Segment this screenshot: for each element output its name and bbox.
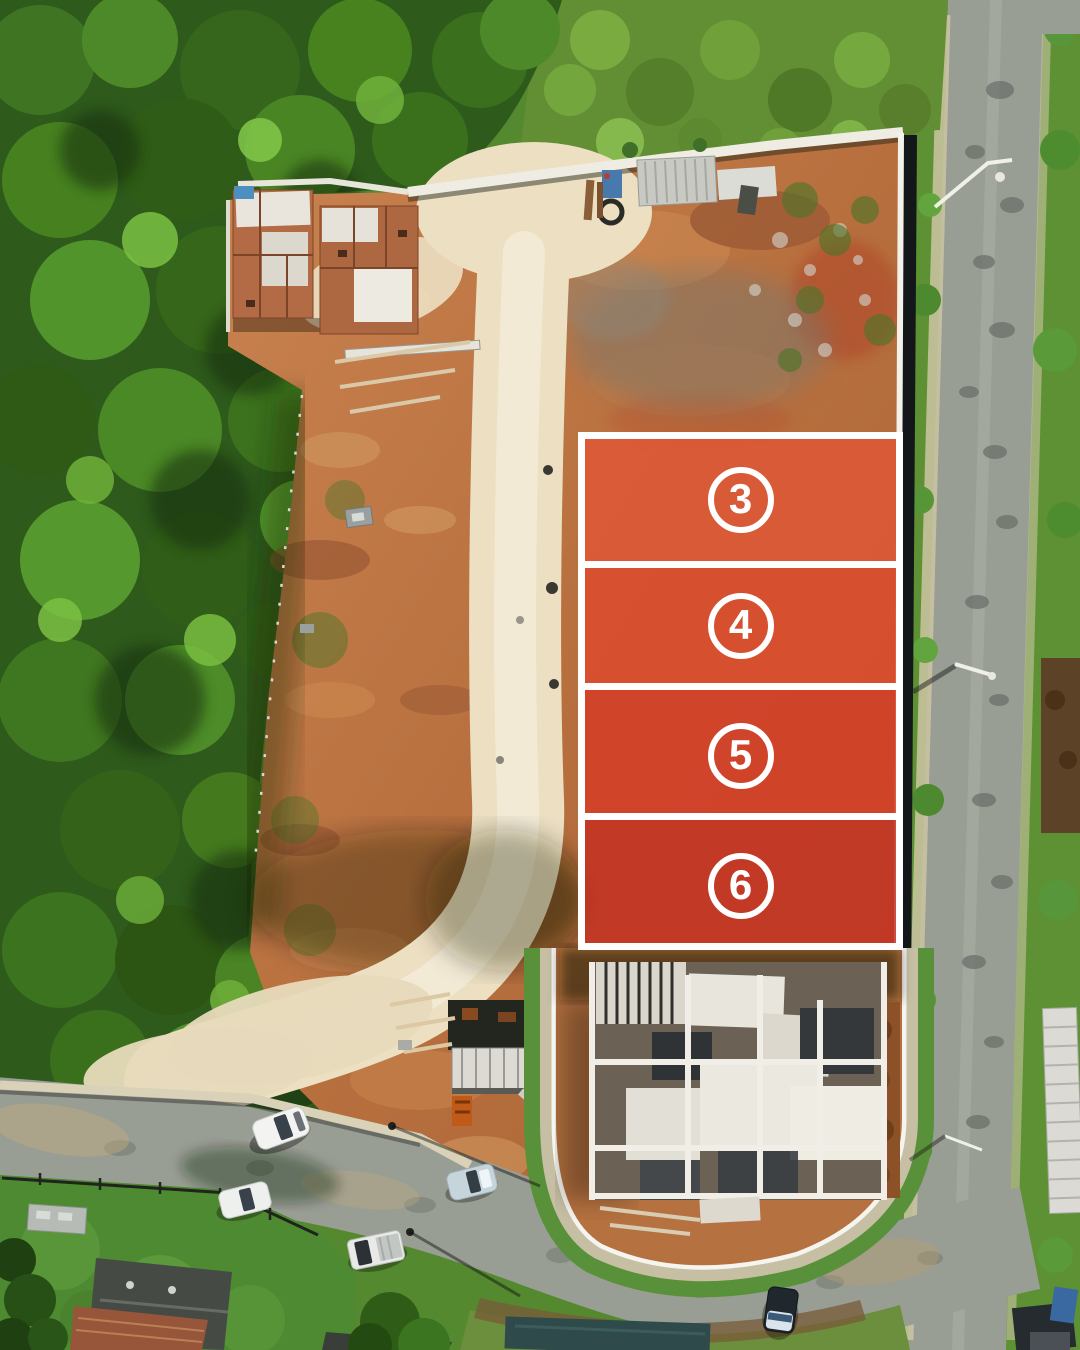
- lot-number-badge: 4: [708, 593, 774, 659]
- lot-number: 6: [729, 864, 752, 906]
- lot-overlays: 3 4 5 6: [0, 0, 1080, 1350]
- lot-number: 4: [729, 604, 752, 646]
- lot-overlay-5[interactable]: 5: [578, 683, 903, 820]
- lot-overlay-6[interactable]: 6: [578, 813, 903, 950]
- lot-overlay-4[interactable]: 4: [578, 561, 903, 690]
- lot-number-badge: 3: [708, 467, 774, 533]
- lot-number: 5: [729, 734, 752, 776]
- lot-number-badge: 6: [708, 853, 774, 919]
- lot-number-badge: 5: [708, 723, 774, 789]
- aerial-photo-scene: 3 4 5 6: [0, 0, 1080, 1350]
- lot-overlay-3[interactable]: 3: [578, 432, 903, 568]
- lot-number: 3: [729, 478, 752, 520]
